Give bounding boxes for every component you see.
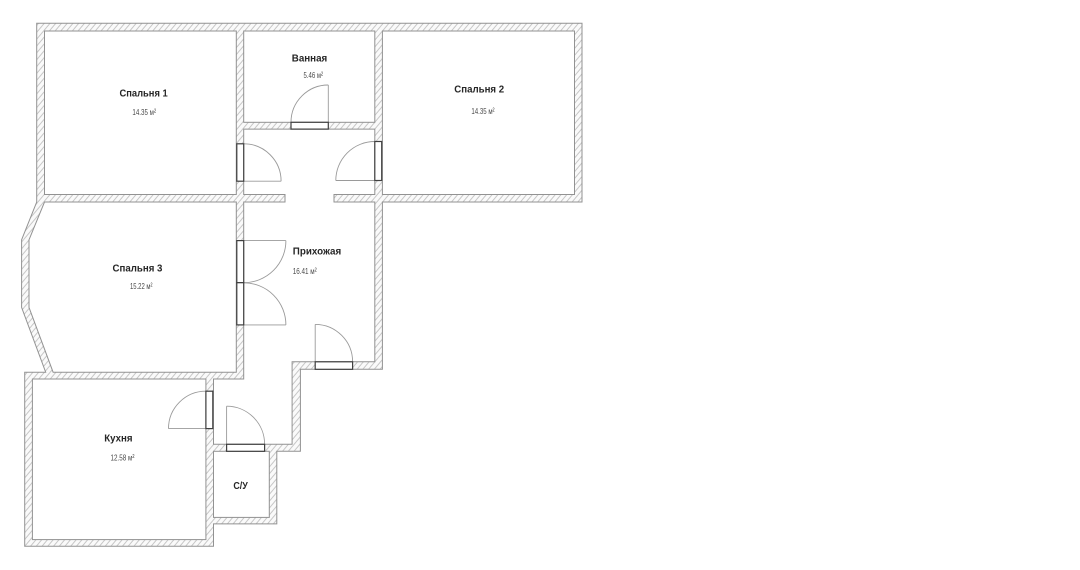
svg-text:5.46 м²: 5.46 м² [304, 70, 324, 80]
svg-text:15.22 м²: 15.22 м² [130, 281, 153, 291]
svg-text:14.35 м²: 14.35 м² [471, 106, 494, 116]
svg-text:Спальня 3: Спальня 3 [113, 262, 163, 274]
svg-text:Спальня 2: Спальня 2 [454, 84, 504, 96]
svg-text:14.35 м²: 14.35 м² [132, 107, 156, 117]
svg-text:С/У: С/У [233, 480, 248, 492]
svg-text:Спальня 1: Спальня 1 [119, 87, 167, 99]
svg-text:Ванная: Ванная [292, 52, 328, 64]
svg-text:Кухня: Кухня [104, 433, 132, 445]
svg-text:16.41 м²: 16.41 м² [293, 266, 317, 276]
svg-text:12.58 м²: 12.58 м² [111, 452, 135, 462]
svg-text:Прихожая: Прихожая [293, 246, 341, 258]
